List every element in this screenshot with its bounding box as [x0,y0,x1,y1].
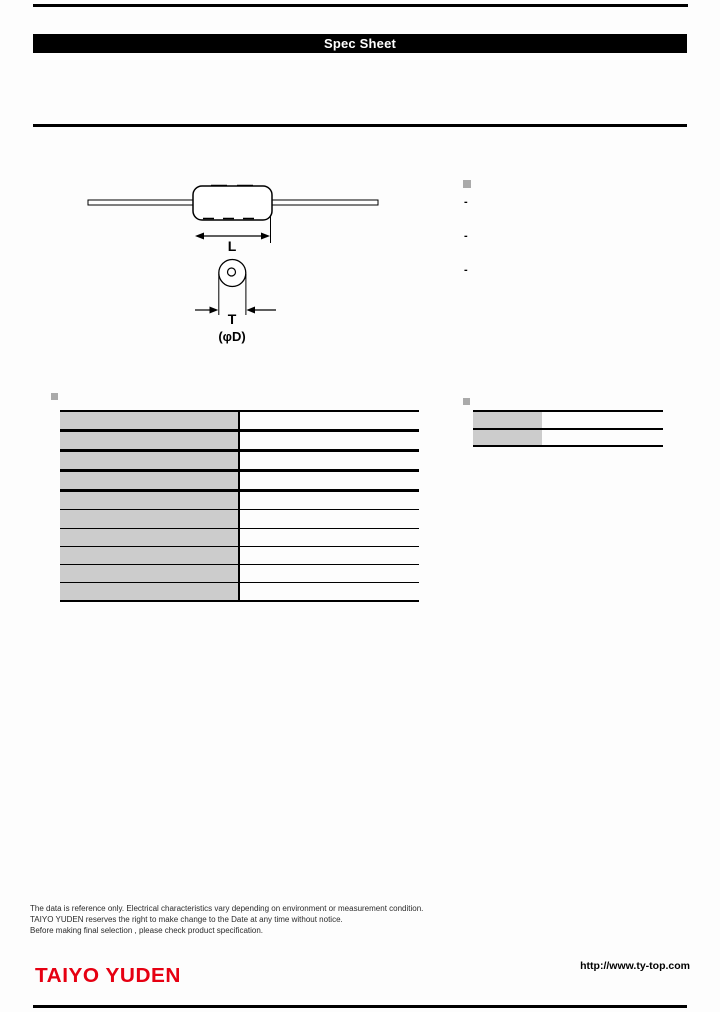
mini-label-cell [473,412,542,428]
table-row [60,412,419,429]
spec-value-cell [240,547,419,564]
section-bullet-icon [463,180,471,188]
table-row [473,428,663,446]
spec-label-cell [60,472,240,489]
mini-table [473,410,663,447]
list-item-dash: - [464,231,478,243]
list-item-dash: - [464,197,478,209]
footer-note-line: TAIYO YUDEN reserves the right to make c… [30,914,590,925]
spec-label-cell [60,547,240,564]
spec-value-cell [240,452,419,469]
spec-label-cell [60,583,240,600]
section-bullet-icon [51,393,58,400]
spec-value-cell [240,510,419,527]
lead-cross-section-circle [228,268,236,276]
table-row [60,469,419,489]
mini-value-cell [542,430,663,446]
spec-sheet-page: Spec Sheet L T (φD) - - - [0,0,720,1012]
mini-label-cell [473,430,542,446]
page-title: Spec Sheet [324,36,396,51]
top-rule [33,4,688,7]
table-row [473,412,663,428]
table-row [60,509,419,527]
component-body-outline [193,186,272,220]
diameter-dimension-label: (φD) [218,329,245,344]
footer-note-line: Before making final selection , please c… [30,925,590,936]
spec-value-cell [240,492,419,509]
table-row [60,564,419,582]
table-row [60,528,419,546]
arrowhead-inward-left-icon [246,307,255,314]
section-bullet-icon [463,398,470,405]
footer-note-line: The data is reference only. Electrical c… [30,903,590,914]
table-row [60,546,419,564]
header-divider-rule [33,124,687,127]
spec-value-cell [240,472,419,489]
component-diagram: L T (φD) [70,165,390,350]
spec-label-cell [60,529,240,546]
bottom-rule [33,1005,687,1008]
list-item-dash: - [464,265,478,277]
table-row [60,489,419,509]
spec-value-cell [240,529,419,546]
table-row [60,449,419,469]
spec-label-cell [60,452,240,469]
taiyo-yuden-logo: TAIYO YUDEN [35,965,181,988]
thickness-dimension-label: T [228,311,237,327]
table-row [60,429,419,449]
spec-label-cell [60,412,240,429]
footer-notes: The data is reference only. Electrical c… [30,903,590,937]
spec-table [60,410,419,602]
mini-value-cell [542,412,663,428]
spec-label-cell [60,565,240,582]
spec-value-cell [240,432,419,449]
arrowhead-left-icon [195,233,204,240]
spec-label-cell [60,492,240,509]
spec-value-cell [240,412,419,429]
arrowhead-inward-right-icon [210,307,219,314]
arrowhead-right-icon [261,233,270,240]
spec-label-cell [60,510,240,527]
table-row [60,582,419,600]
spec-label-cell [60,432,240,449]
spec-value-cell [240,583,419,600]
length-dimension-label: L [228,238,237,254]
spec-value-cell [240,565,419,582]
website-url-link[interactable]: http://www.ty-top.com [580,960,690,972]
title-bar: Spec Sheet [33,34,687,53]
